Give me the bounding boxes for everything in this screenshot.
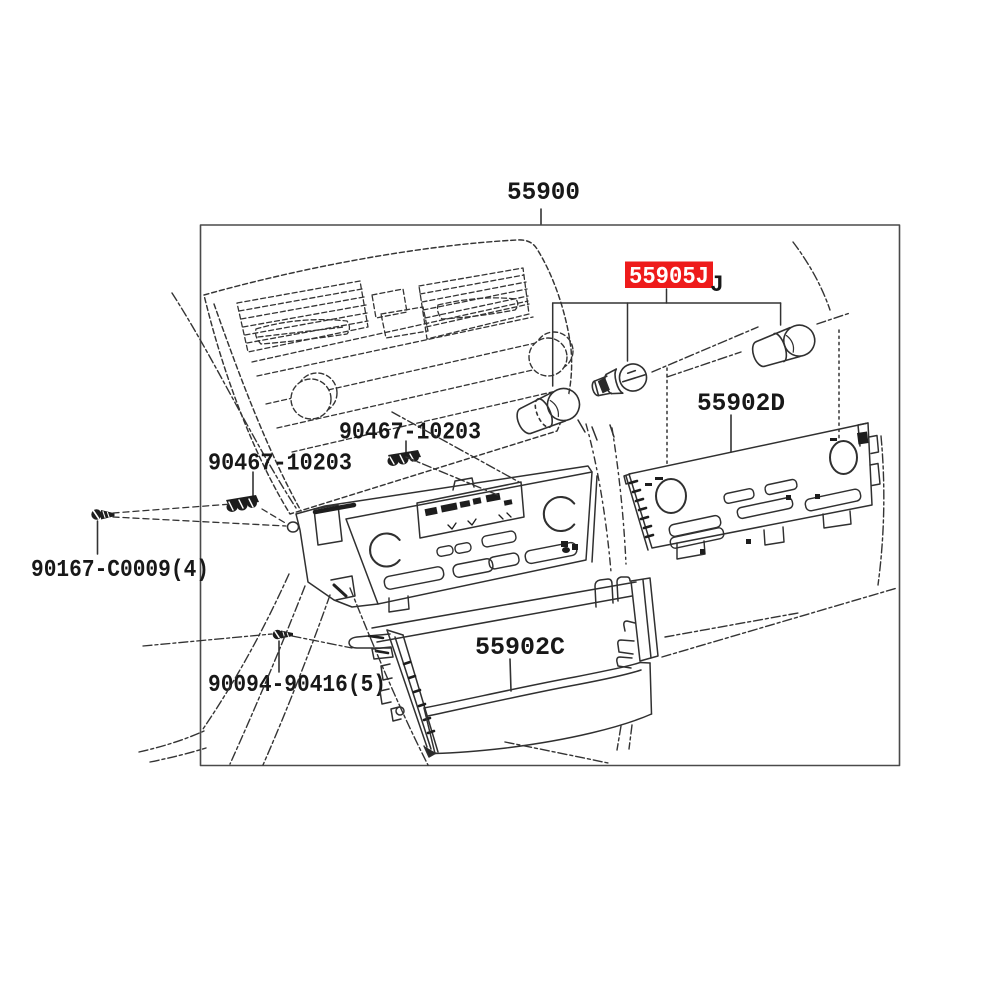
svg-text:J: J [710,272,724,298]
svg-text:55902C: 55902C [475,633,565,662]
svg-text:90467-10203: 90467-10203 [208,451,352,478]
svg-text:90467-10203: 90467-10203 [339,420,481,447]
svg-text:90167-C0009(4): 90167-C0009(4) [31,557,209,584]
svg-text:55905J: 55905J [629,264,709,291]
svg-text:55902D: 55902D [697,389,785,418]
svg-text:55900: 55900 [507,178,580,207]
svg-text:90094-90416(5): 90094-90416(5) [208,672,386,699]
